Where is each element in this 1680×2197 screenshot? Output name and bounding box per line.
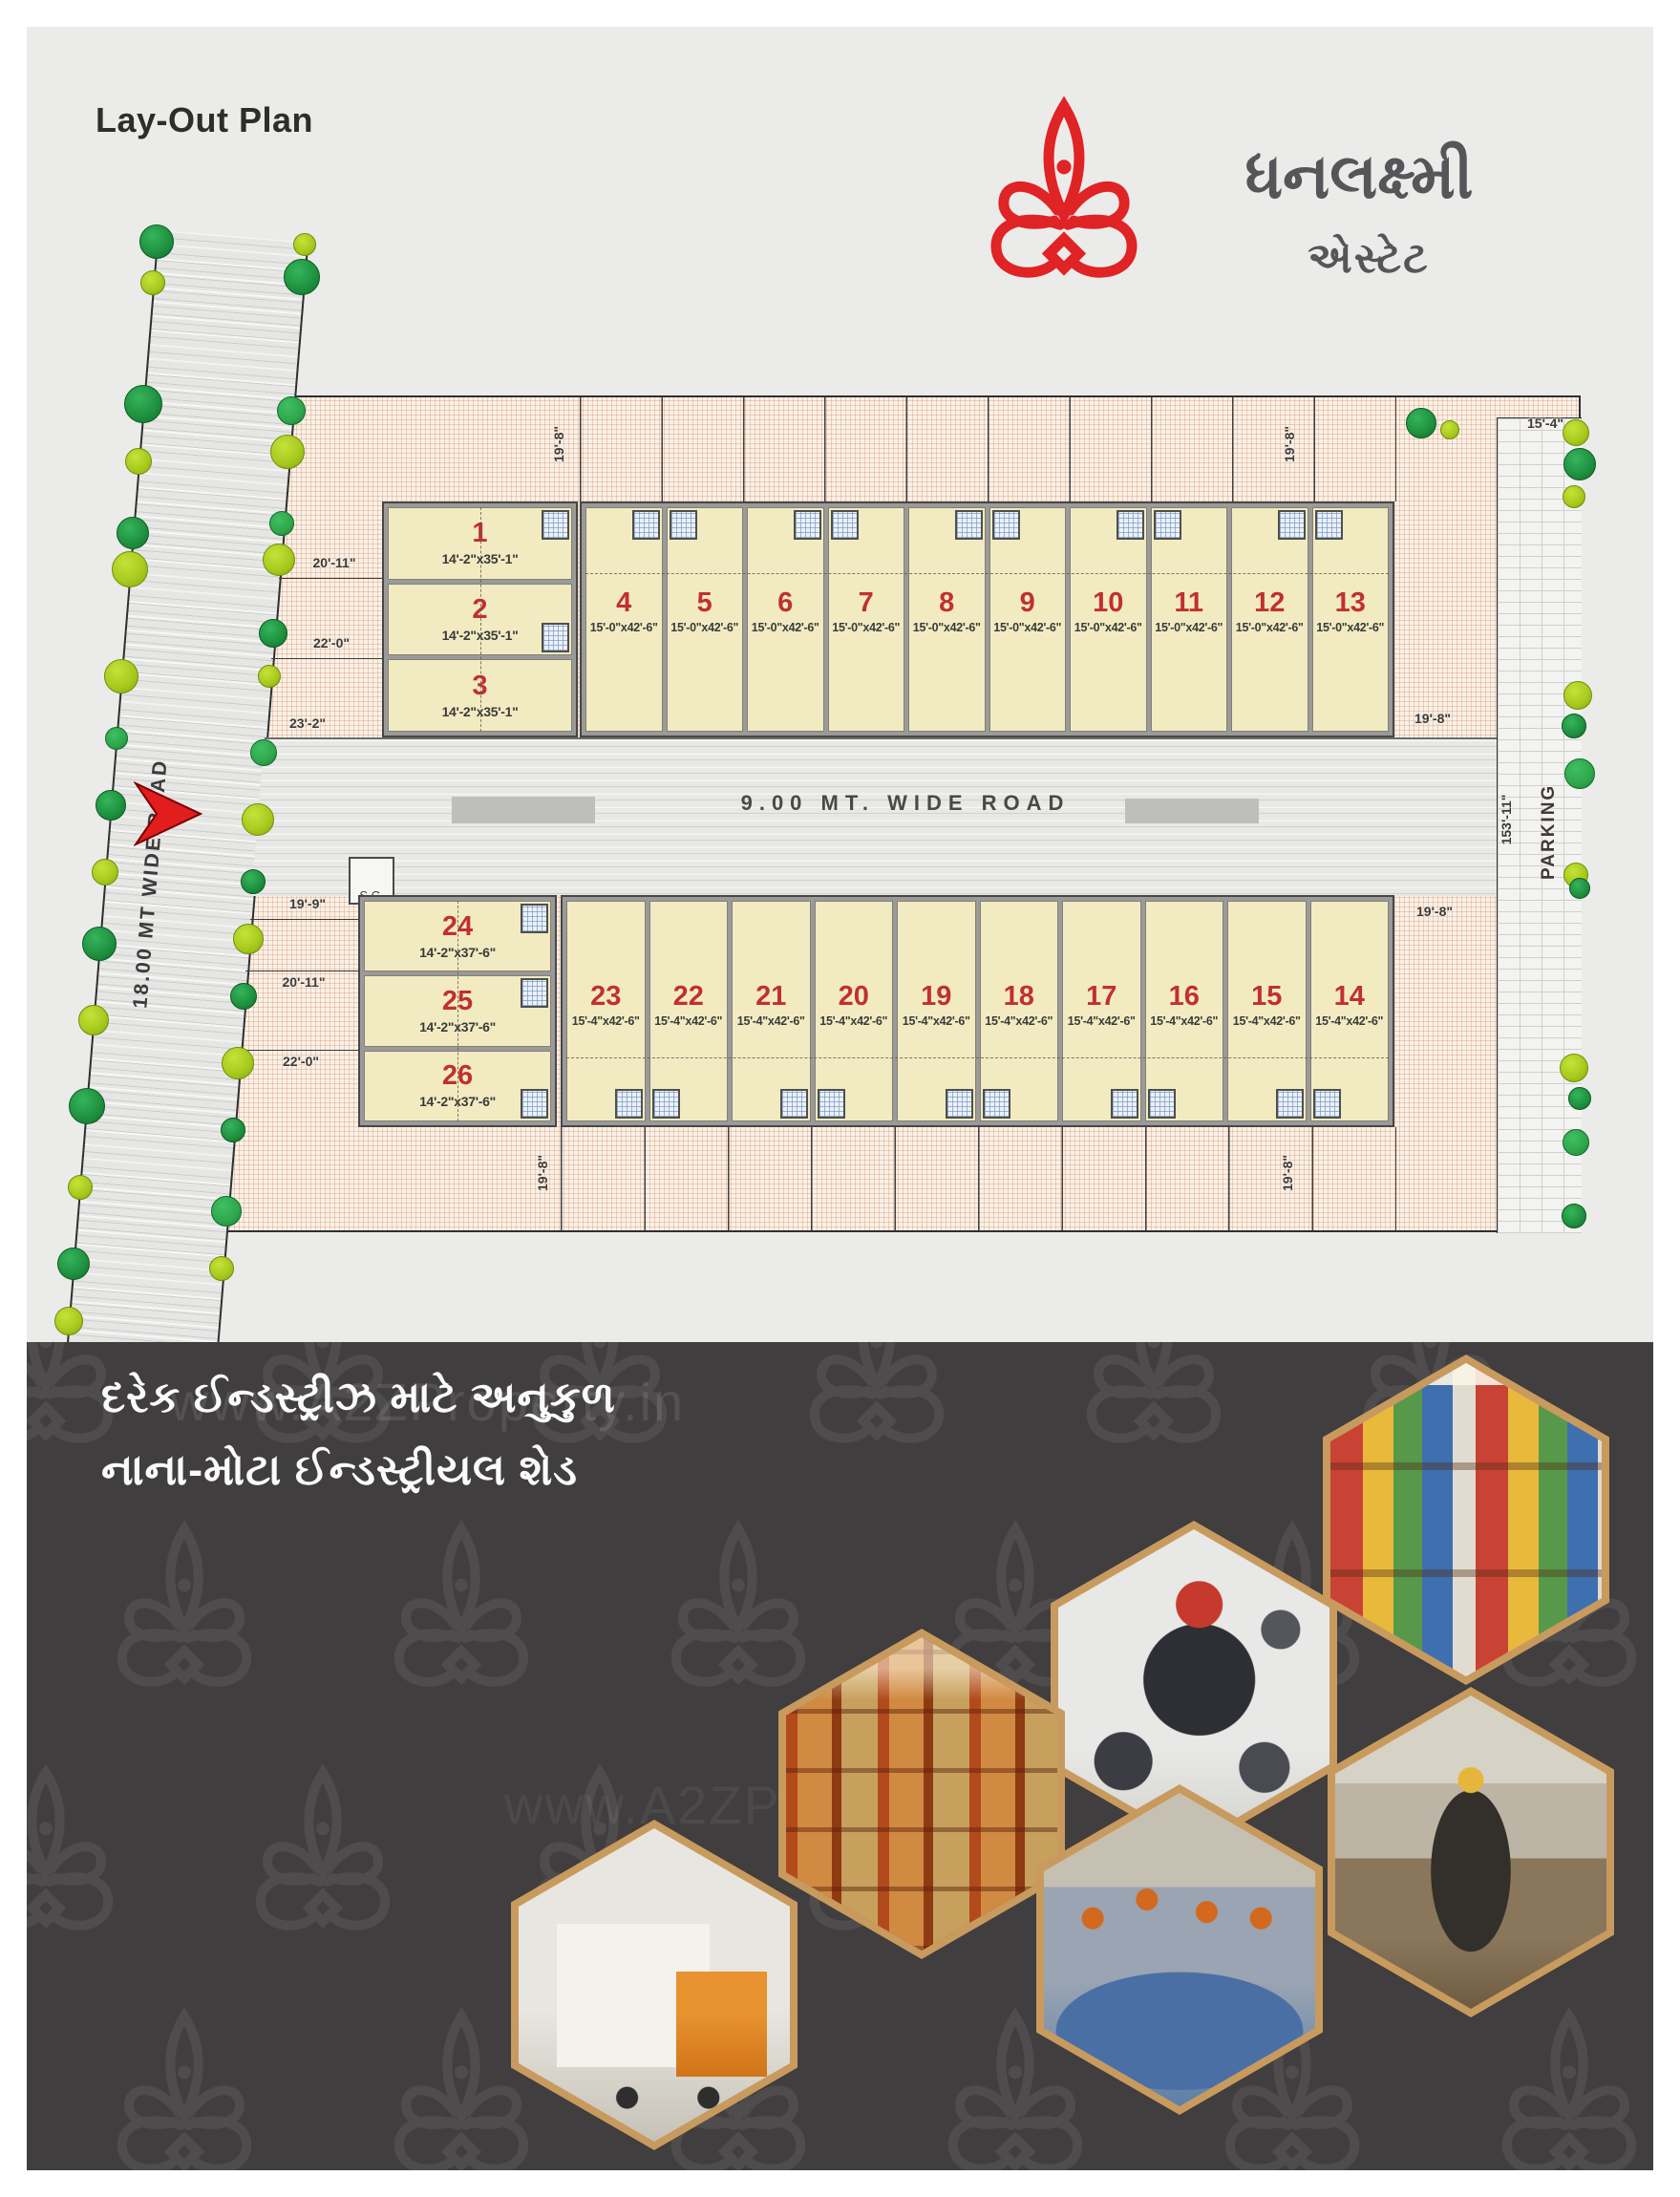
plot-size: 15'-4"x42'-6" xyxy=(985,1014,1053,1028)
tree-icon xyxy=(258,665,281,688)
plot-size: 15'-0"x42'-6" xyxy=(913,621,981,634)
dim-label: 19'-8" xyxy=(1401,904,1468,919)
plot-number: 21 xyxy=(755,983,786,1011)
page-title: Lay-Out Plan xyxy=(96,100,313,140)
plot: 16 15'-4"x42'-6" xyxy=(1145,901,1224,1121)
brochure-page: Lay-Out Plan ધનલક્ષ્મી એસ્ટેટ 18.00 MT W… xyxy=(0,0,1680,2197)
plot: 20 15'-4"x42'-6" xyxy=(815,901,894,1121)
plot-size: 15'-4"x42'-6" xyxy=(572,1014,640,1028)
promo-section: www.A2ZProperty.in www.A2ZProperty.in દર… xyxy=(27,1342,1653,2170)
tree-icon xyxy=(1563,448,1596,480)
tree-icon xyxy=(241,869,266,894)
dim-label: 153'-11" xyxy=(1499,777,1514,863)
plot-size: 15'-0"x42'-6" xyxy=(832,621,900,634)
dim-label: 19'-8" xyxy=(1282,411,1297,478)
plot: 17 15'-4"x42'-6" xyxy=(1062,901,1141,1121)
lotus-watermark-icon xyxy=(27,1762,122,1939)
plot-number: 7 xyxy=(859,589,874,617)
plot-size: 15'-4"x42'-6" xyxy=(903,1014,970,1028)
dim-line xyxy=(245,971,358,971)
lotus-watermark-icon xyxy=(385,1519,538,1696)
plot: 19 15'-4"x42'-6" xyxy=(897,901,976,1121)
brand-name: ધનલક્ષ્મી xyxy=(1154,139,1564,215)
tree-icon xyxy=(250,739,277,766)
dim-label: 20'-11" xyxy=(296,555,372,570)
plot-block-23-14: 23 15'-4"x42'-6" 22 15'-4"x42'-6" 21 15'… xyxy=(561,895,1394,1127)
plot: 4 15'-0"x42'-6" xyxy=(585,507,663,732)
tree-icon xyxy=(1563,1129,1589,1156)
tree-icon xyxy=(54,1307,83,1335)
plot-size: 15'-4"x42'-6" xyxy=(819,1014,887,1028)
plot-number: 22 xyxy=(673,983,704,1011)
plot-number: 11 xyxy=(1174,589,1203,617)
plot-size: 14'-2"x35'-1" xyxy=(442,704,519,719)
tree-icon xyxy=(82,927,117,961)
tree-icon xyxy=(105,727,128,750)
tagline-line1: દરેક ઈન્ડસ્ટ્રીઝ માટે અનુકુળ xyxy=(101,1373,616,1423)
dim-label: 19'-8" xyxy=(535,1140,550,1206)
tree-icon xyxy=(1562,1204,1586,1228)
plot-number: 2 xyxy=(472,596,487,624)
tree-icon xyxy=(68,1175,93,1200)
plot-size: 14'-2"x37'-6" xyxy=(419,945,496,960)
tree-icon xyxy=(125,448,152,475)
plot-number: 8 xyxy=(939,589,954,617)
tree-icon xyxy=(1568,1087,1591,1110)
dim-label: 20'-11" xyxy=(266,974,342,990)
tree-icon xyxy=(1569,878,1590,899)
lotus-watermark-icon xyxy=(108,2006,261,2170)
tree-icon xyxy=(259,619,287,648)
entry-arrow-icon xyxy=(134,779,214,848)
plot-number: 25 xyxy=(442,988,473,1015)
plot-extension-lines-top xyxy=(580,397,1396,501)
tree-icon xyxy=(1563,681,1592,710)
plot-number: 1 xyxy=(472,520,487,547)
plot-size: 15'-0"x42'-6" xyxy=(1155,621,1223,634)
plot-block-4-13: 4 15'-0"x42'-6" 5 15'-0"x42'-6" 6 15'-0"… xyxy=(580,501,1394,737)
plot-number: 17 xyxy=(1086,983,1116,1011)
plot-size: 15'-0"x42'-6" xyxy=(1074,621,1142,634)
plot: 6 15'-0"x42'-6" xyxy=(747,507,824,732)
lotus-watermark-icon xyxy=(800,1342,953,1452)
tree-icon xyxy=(211,1196,242,1226)
plot-block-1-3: 1 14'-2"x35'-1" 2 14'-2"x35'-1" 3 14'-2"… xyxy=(382,501,578,737)
plot: 25 14'-2"x37'-6" xyxy=(364,975,551,1046)
plot: 11 15'-0"x42'-6" xyxy=(1151,507,1228,732)
plot: 10 15'-0"x42'-6" xyxy=(1070,507,1147,732)
tree-icon xyxy=(117,517,149,549)
tree-icon xyxy=(1563,419,1589,446)
dim-label: 19'-8" xyxy=(1280,1140,1295,1206)
plot-number: 15 xyxy=(1251,983,1282,1011)
plot: 14 15'-4"x42'-6" xyxy=(1310,901,1390,1121)
tree-icon xyxy=(221,1118,245,1142)
plot-number: 18 xyxy=(1004,983,1034,1011)
plot-number: 12 xyxy=(1254,589,1285,617)
plot-size: 15'-4"x42'-6" xyxy=(1068,1014,1136,1028)
plot: 22 15'-4"x42'-6" xyxy=(649,901,729,1121)
tree-icon xyxy=(57,1248,90,1280)
plot-size: 14'-2"x37'-6" xyxy=(419,1094,496,1109)
lotus-watermark-icon xyxy=(662,1519,815,1696)
tree-icon xyxy=(269,511,294,536)
plot: 7 15'-0"x42'-6" xyxy=(828,507,905,732)
dim-line xyxy=(279,578,382,579)
plot: 23 15'-4"x42'-6" xyxy=(566,901,646,1121)
tree-icon xyxy=(1406,408,1436,438)
plot-number: 26 xyxy=(442,1062,473,1090)
factory-worker-photo xyxy=(1335,1696,1606,2009)
tree-icon xyxy=(1562,714,1586,738)
tagline-line2: નાના-મોટા ઈન્ડસ્ટ્રીયલ શેડ xyxy=(101,1445,578,1496)
brand-subtitle: એસ્ટેટ xyxy=(1211,235,1526,283)
plot: 5 15'-0"x42'-6" xyxy=(667,507,744,732)
tree-icon xyxy=(284,259,320,295)
tree-icon xyxy=(112,551,148,587)
plot-number: 10 xyxy=(1093,589,1123,617)
dim-label: 22'-0" xyxy=(293,635,370,651)
tree-icon xyxy=(140,270,165,295)
lotus-watermark-icon xyxy=(1077,1342,1230,1452)
tree-icon xyxy=(242,803,274,836)
central-road xyxy=(251,737,1497,900)
plot-number: 23 xyxy=(590,983,621,1011)
plot-size: 15'-0"x42'-6" xyxy=(590,621,658,634)
tree-icon xyxy=(1563,485,1585,508)
textile-workers-photo xyxy=(1044,1793,1315,2106)
plot: 18 15'-4"x42'-6" xyxy=(980,901,1059,1121)
tree-icon xyxy=(1560,1054,1588,1082)
plot-number: 24 xyxy=(442,913,473,941)
warehouse-racks-photo xyxy=(786,1637,1057,1951)
tree-icon xyxy=(233,924,264,954)
plot-extension-lines-bottom xyxy=(561,1127,1396,1230)
tree-icon xyxy=(1564,758,1595,789)
plot: 26 14'-2"x37'-6" xyxy=(364,1051,551,1121)
plot-number: 9 xyxy=(1020,589,1035,617)
dim-label: 19'-8" xyxy=(1399,711,1466,726)
dim-line xyxy=(239,1050,358,1051)
tree-icon xyxy=(263,544,295,576)
plot-size: 15'-4"x42'-6" xyxy=(1150,1014,1218,1028)
plot: 9 15'-0"x42'-6" xyxy=(989,507,1067,732)
plot-number: 3 xyxy=(472,672,487,700)
dim-line xyxy=(271,658,382,659)
tree-icon xyxy=(209,1256,234,1281)
plot: 15 15'-4"x42'-6" xyxy=(1227,901,1307,1121)
plot-number: 19 xyxy=(921,983,951,1011)
tree-icon xyxy=(293,233,316,256)
plot-number: 4 xyxy=(616,589,631,617)
plot-size: 15'-4"x42'-6" xyxy=(1233,1014,1301,1028)
tree-icon xyxy=(104,659,138,693)
plot: 1 14'-2"x35'-1" xyxy=(388,507,572,580)
layout-plan-section: Lay-Out Plan ધનલક્ષ્મી એસ્ટેટ 18.00 MT W… xyxy=(27,27,1653,1342)
plot: 3 14'-2"x35'-1" xyxy=(388,659,572,732)
tree-icon xyxy=(270,435,305,469)
plot-size: 15'-0"x42'-6" xyxy=(993,621,1061,634)
plot-size: 14'-2"x37'-6" xyxy=(419,1019,496,1035)
tree-icon xyxy=(69,1088,105,1124)
central-road-label: 9.00 MT. WIDE ROAD xyxy=(523,791,1287,816)
dim-line xyxy=(250,919,358,920)
plot: 24 14'-2"x37'-6" xyxy=(364,901,551,971)
plot: 13 15'-0"x42'-6" xyxy=(1312,507,1390,732)
plot-size: 15'-4"x42'-6" xyxy=(737,1014,805,1028)
plot-number: 6 xyxy=(777,589,793,617)
plot-block-24-26: 24 14'-2"x37'-6" 25 14'-2"x37'-6" 26 14'… xyxy=(358,895,557,1127)
lotus-watermark-icon xyxy=(1493,2006,1646,2170)
site-boundary-bottom xyxy=(224,1230,1581,1232)
lotus-logo-icon xyxy=(984,76,1144,306)
tree-icon xyxy=(139,224,174,259)
parking-label: PARKING xyxy=(1539,784,1560,880)
plot: 2 14'-2"x35'-1" xyxy=(388,584,572,656)
tree-icon xyxy=(222,1047,254,1079)
tree-icon xyxy=(230,983,257,1010)
plot: 12 15'-0"x42'-6" xyxy=(1231,507,1308,732)
hexagon-photo-factory-worker xyxy=(1328,1687,1614,2017)
plot-number: 14 xyxy=(1334,983,1365,1011)
plot-number: 20 xyxy=(839,983,869,1011)
plot-number: 13 xyxy=(1335,589,1366,617)
dim-label: 23'-2" xyxy=(269,715,346,731)
dim-label: 22'-0" xyxy=(263,1054,339,1069)
plot: 21 15'-4"x42'-6" xyxy=(732,901,811,1121)
tree-icon xyxy=(78,1005,109,1035)
lotus-watermark-icon xyxy=(246,1762,399,1939)
plot-number: 5 xyxy=(697,589,712,617)
plot: 8 15'-0"x42'-6" xyxy=(908,507,986,732)
plot-size: 15'-0"x42'-6" xyxy=(1236,621,1304,634)
plot-size: 15'-0"x42'-6" xyxy=(670,621,738,634)
lotus-watermark-icon xyxy=(108,1519,261,1696)
plot-size: 14'-2"x35'-1" xyxy=(442,628,519,643)
cargo-truck-photo xyxy=(519,1828,790,2142)
tree-icon xyxy=(96,790,126,821)
dim-label: 19'-9" xyxy=(269,896,346,911)
plot-size: 15'-4"x42'-6" xyxy=(654,1014,722,1028)
tree-icon xyxy=(277,396,306,425)
tree-icon xyxy=(92,859,118,885)
tree-icon xyxy=(124,385,162,423)
plot-size: 15'-0"x42'-6" xyxy=(1316,621,1384,634)
tree-icon xyxy=(1440,420,1459,439)
plot-number: 16 xyxy=(1169,983,1200,1011)
dim-label: 19'-8" xyxy=(551,411,566,478)
plot-size: 15'-0"x42'-6" xyxy=(752,621,819,634)
plot-size: 15'-4"x42'-6" xyxy=(1315,1014,1383,1028)
plot-size: 14'-2"x35'-1" xyxy=(442,551,519,566)
grocery-products-photo xyxy=(1330,1363,1602,1676)
